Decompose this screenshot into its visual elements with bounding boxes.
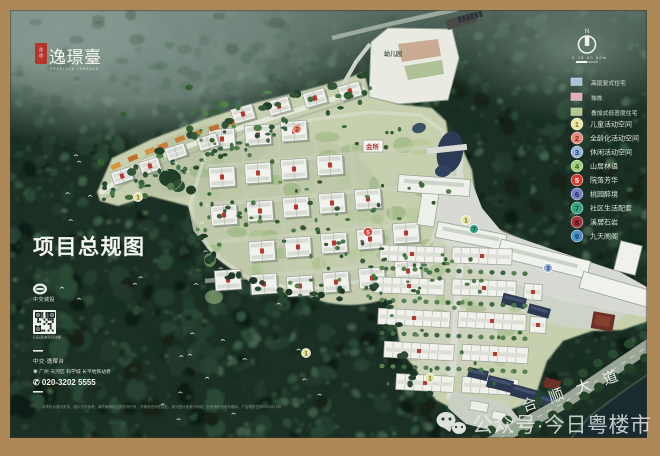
svg-text:儿童活动空间: 儿童活动空间 [590,120,632,129]
svg-text:2: 2 [295,126,299,133]
svg-text:8: 8 [575,218,579,227]
svg-text:6: 6 [575,190,579,199]
svg-text:5: 5 [366,229,370,236]
svg-text:幼儿园: 幼儿园 [384,50,402,58]
svg-text:山居林语: 山居林语 [590,162,618,171]
svg-text:扫码咨询项目详情: 扫码咨询项目详情 [33,335,61,340]
svg-text:◉ 广州·天河区·科学城 长平地铁站旁: ◉ 广州·天河区·科学城 长平地铁站旁 [33,368,111,375]
svg-text:✆ 020-3202 5555: ✆ 020-3202 5555 [33,378,96,387]
svg-text:会所: 会所 [366,142,380,151]
svg-text:社区生活配套: 社区生活配套 [590,204,632,213]
svg-text:独栋: 独栋 [591,94,603,102]
svg-text:公众号·今日粤楼市: 公众号·今日粤楼市 [472,414,652,437]
svg-text:9: 9 [575,232,579,241]
svg-text:1: 1 [304,350,308,357]
svg-text:中交城投: 中交城投 [33,296,55,303]
svg-text:休闲活动空间: 休闲活动空间 [590,148,632,157]
svg-text:项目总规图: 项目总规图 [33,235,146,259]
svg-text:中交·逸璨台: 中交·逸璨台 [33,357,64,365]
svg-text:桃园醉境: 桃园醉境 [590,190,618,199]
svg-text:7: 7 [472,226,476,233]
svg-text:3: 3 [546,265,550,272]
svg-text:逸: 逸 [39,46,43,52]
svg-text:7: 7 [575,204,579,213]
svg-text:2: 2 [575,134,579,143]
svg-text:1: 1 [428,375,432,382]
svg-text:1: 1 [136,194,140,201]
svg-text:PRECIOUS TERRACE: PRECIOUS TERRACE [50,67,99,71]
svg-text:逸璟臺: 逸璟臺 [49,48,102,67]
svg-text:1: 1 [575,120,579,129]
svg-text:溪居石岩: 溪居石岩 [590,218,618,227]
svg-text:3: 3 [575,148,579,157]
svg-text:1: 1 [464,217,468,224]
svg-text:璟: 璟 [39,52,43,58]
svg-text:5: 5 [575,176,579,185]
svg-text:院落芳华: 院落芳华 [590,176,618,185]
svg-text:0 15 30 60m: 0 15 30 60m [572,55,607,60]
svg-text:高层复式住宅: 高层复式住宅 [591,79,626,87]
svg-text:九天阌阁: 九天阌阁 [590,232,618,241]
svg-text:全龄化活动空间: 全龄化活动空间 [590,134,639,143]
svg-text:叠加式低密度住宅: 叠加式低密度住宅 [591,109,638,117]
svg-text:本季料为要约邀请，图片仅供参考，最终解释权归开发商所有，详情: 本季料为要约邀请，图片仅供参考，最终解释权归开发商所有，详情请咨询售楼处，部分图… [42,404,281,409]
svg-text:N: N [585,29,589,35]
